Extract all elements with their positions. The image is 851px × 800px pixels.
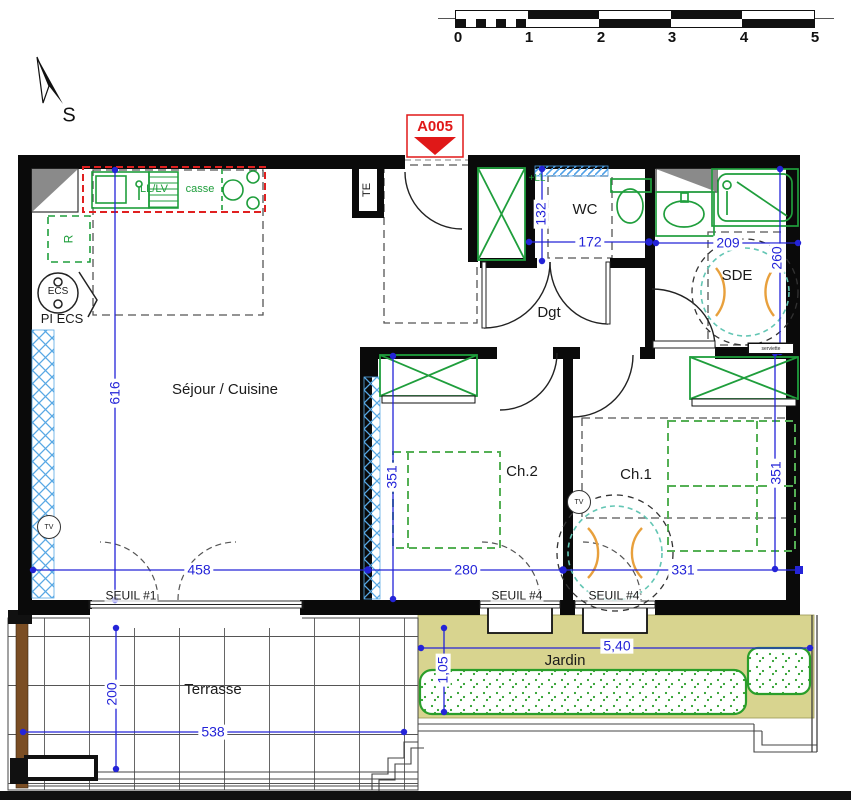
threshold-label-seuil1: SEUIL #1: [105, 590, 158, 603]
threshold-label-seuil4-ch1: SEUIL #4: [588, 590, 641, 603]
towel-rail-text: serviette: [762, 346, 781, 352]
ch2-window-bay: [488, 607, 552, 633]
dim-sde-width: 209: [713, 236, 742, 251]
kitchen-counter: [48, 167, 265, 262]
room-label-wc: WC: [573, 202, 598, 218]
hob-burner: [223, 180, 243, 200]
ch2-bed: [393, 452, 500, 548]
threshold-label-seuil4-ch2: SEUIL #4: [491, 590, 544, 603]
shower-tray: [712, 169, 798, 226]
hedge-large: [420, 670, 746, 714]
room-label-sejour-cuisine: Séjour / Cuisine: [172, 382, 278, 398]
floor-plan-page: 0 1 2 3 4 5 A005 S Séjour / Cuisine WC S…: [0, 0, 851, 800]
room-label-ch2: Ch.2: [506, 464, 538, 480]
dim-terrasse-height: 200: [105, 679, 120, 708]
kitchen-drawers-label: casse: [186, 184, 215, 196]
scale-bar-top-row: [456, 11, 814, 19]
dim-sejour-height: 616: [108, 378, 123, 407]
garden-steps: [418, 724, 817, 752]
north-arrow-icon: [37, 57, 63, 104]
dim-jardin-height: 1,05: [436, 653, 451, 686]
garden-area: [418, 615, 817, 752]
water-heater-full-label: PI ECS: [41, 312, 84, 326]
scale-bar: [455, 10, 815, 28]
washer-dishwasher-label: LL/LV: [140, 184, 168, 196]
north-letter: S: [62, 106, 75, 127]
beds: [393, 421, 795, 551]
fridge-label: R: [63, 235, 76, 244]
dim-sej-width: 458: [184, 563, 213, 578]
dim-ch1-height: 351: [769, 458, 784, 487]
scale-tick-5: 5: [811, 30, 819, 46]
room-label-ch1: Ch.1: [620, 467, 652, 483]
electrical-panel-label: TE: [362, 183, 374, 197]
tv-living-label: TV: [45, 524, 54, 531]
dim-jardin-width: 5,40: [600, 639, 633, 654]
towel-rail-label: serviette: [748, 343, 794, 354]
toilet-bowl: [617, 189, 643, 223]
bottom-black-band: [0, 791, 851, 800]
room-label-jardin: Jardin: [545, 653, 586, 669]
hedge-small: [748, 648, 810, 694]
scale-tick-0: 0: [454, 30, 462, 46]
dim-ch1-width: 331: [668, 563, 697, 578]
turning-circles: [557, 239, 798, 611]
scale-tick-1: 1: [525, 30, 533, 46]
room-label-dgt: Dgt: [537, 305, 560, 321]
washer-slot-label: +LL: [529, 174, 546, 185]
tv-bedroom-label: TV: [575, 499, 584, 506]
scale-bar-bottom-row: [456, 19, 814, 27]
dim-wc-width: 172: [575, 235, 604, 250]
terrace-planter: [26, 757, 96, 779]
door-swings: [405, 160, 715, 417]
room-label-sde: SDE: [722, 268, 753, 284]
dim-wc-height: 132: [534, 199, 549, 228]
tv-outlet-living: TV: [37, 515, 61, 539]
room-label-terrasse: Terrasse: [184, 682, 242, 698]
dim-terrasse-width: 538: [198, 725, 227, 740]
dim-ch2-height: 351: [385, 462, 400, 491]
dim-sde-height: 260: [770, 243, 785, 272]
unit-marker-label: A005: [417, 119, 453, 135]
dim-ch2-width: 280: [451, 563, 480, 578]
tv-outlet-bedroom: TV: [567, 490, 591, 514]
duct-shafts: [32, 169, 717, 212]
scale-tick-4: 4: [740, 30, 748, 46]
scale-tick-2: 2: [597, 30, 605, 46]
water-heater-label: ECS: [48, 287, 69, 298]
scale-tick-3: 3: [668, 30, 676, 46]
